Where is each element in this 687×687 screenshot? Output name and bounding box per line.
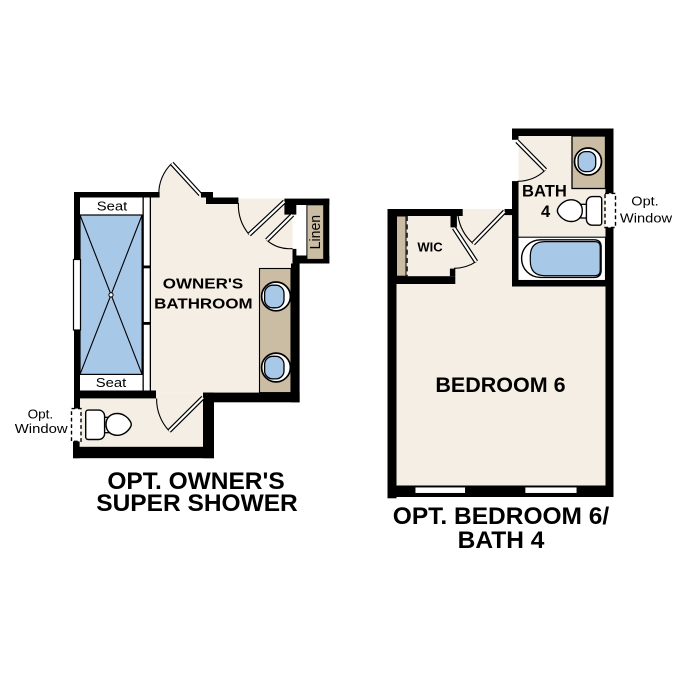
svg-text:Seat: Seat [97,199,128,213]
svg-text:Linen: Linen [308,215,324,250]
svg-text:WIC: WIC [417,240,443,255]
svg-text:SUPER SHOWER: SUPER SHOWER [96,490,298,517]
svg-text:OPT. BEDROOM 6/: OPT. BEDROOM 6/ [393,503,610,530]
svg-text:BATHROOM: BATHROOM [154,297,252,313]
svg-text:Window: Window [15,421,68,436]
svg-text:BATH: BATH [522,182,567,200]
svg-text:Opt.: Opt. [631,194,658,209]
svg-text:Seat: Seat [96,376,127,390]
svg-text:OWNER'S: OWNER'S [163,277,244,293]
svg-text:BATH 4: BATH 4 [458,527,545,554]
svg-text:4: 4 [541,203,551,221]
svg-text:BEDROOM 6: BEDROOM 6 [435,373,565,397]
svg-text:Window: Window [620,210,673,225]
svg-text:Opt.: Opt. [28,407,54,422]
